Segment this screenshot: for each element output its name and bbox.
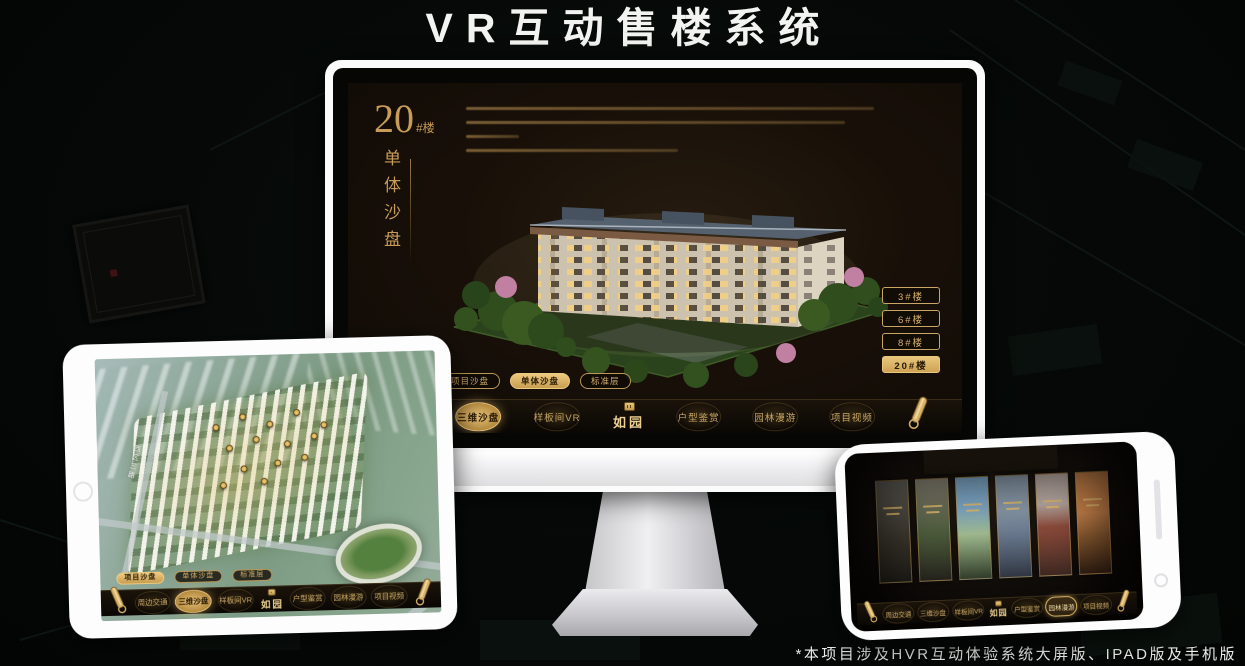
building-badge[interactable] xyxy=(311,432,318,439)
page: VR互动售楼系统 20#楼 单体沙盘 xyxy=(0,0,1245,666)
scroll-icon[interactable] xyxy=(1115,594,1133,613)
brand-logo-text: 如园 xyxy=(261,596,284,611)
seal-icon xyxy=(268,588,276,595)
scroll-icon[interactable] xyxy=(108,592,130,615)
floor-button-8[interactable]: 8#楼 xyxy=(882,333,940,350)
tab-unit-sandbox[interactable]: 单体沙盘 xyxy=(510,373,570,389)
tab-standard-floor[interactable]: 标准层 xyxy=(232,568,272,581)
brand-logo: 如园 xyxy=(613,402,645,431)
unit-subtitle: 单体沙盘 xyxy=(378,149,403,271)
phone-device: 周边交通 三维沙盘 样板间VR 如园 户型鉴赏 园林漫游 项目视频 xyxy=(834,431,1182,642)
monitor-stand xyxy=(585,490,725,592)
nav-item-garden-tour[interactable]: 园林漫游 xyxy=(331,588,365,606)
floor-button-6[interactable]: 6#楼 xyxy=(882,310,940,327)
nav-item-showroom-vr[interactable]: 样板间VR xyxy=(952,602,985,619)
scroll-icon[interactable] xyxy=(413,584,435,607)
text-line xyxy=(466,121,845,124)
building-badge[interactable] xyxy=(240,465,247,472)
phone-app-screen: 周边交通 三维沙盘 样板间VR 如园 户型鉴赏 园林漫游 项目视频 xyxy=(844,441,1143,632)
nav-item-floorplans[interactable]: 户型鉴赏 xyxy=(290,589,324,607)
plaque-border xyxy=(83,215,196,313)
tablet-app-screen: 西区三路 项目沙盘 单体沙盘 标准层 xyxy=(95,350,442,621)
nav-item-3d-sandbox[interactable]: 三维沙盘 xyxy=(455,407,501,427)
tab-standard-floor[interactable]: 标准层 xyxy=(580,373,631,389)
building-badge[interactable] xyxy=(212,424,219,431)
floor-button-group: 3#楼 6#楼 8#楼 20#楼 xyxy=(882,287,940,373)
seal-icon xyxy=(624,402,635,411)
nav-item-floorplans[interactable]: 户型鉴赏 xyxy=(1012,599,1043,616)
nav-item-showroom-vr[interactable]: 样板间VR xyxy=(532,407,583,427)
home-button[interactable] xyxy=(1154,573,1169,588)
red-seal-icon xyxy=(110,269,118,277)
brand-logo: 如园 xyxy=(261,588,285,611)
brand-logo-text: 如园 xyxy=(613,412,645,431)
unit-number-suffix: #楼 xyxy=(416,121,435,135)
nav-item-floorplans[interactable]: 户型鉴赏 xyxy=(676,407,722,427)
nav-item-3d-sandbox[interactable]: 三维沙盘 xyxy=(918,603,949,620)
floor-button-20[interactable]: 20#楼 xyxy=(882,356,940,373)
seal-icon xyxy=(995,600,1002,606)
tab-project-sandbox[interactable]: 项目沙盘 xyxy=(116,571,164,585)
building-badge[interactable] xyxy=(274,459,281,466)
scroll-icon[interactable] xyxy=(861,605,879,624)
nav-item-project-video[interactable]: 项目视频 xyxy=(1081,596,1112,613)
unit-title-block: 20#楼 单体沙盘 xyxy=(374,99,435,271)
floor-button-3[interactable]: 3#楼 xyxy=(882,287,940,304)
nav-item-garden-tour[interactable]: 园林漫游 xyxy=(752,407,798,427)
nav-item-project-video[interactable]: 项目视频 xyxy=(829,407,875,427)
tablet-device: 西区三路 项目沙盘 单体沙盘 标准层 xyxy=(62,335,458,639)
nav-item-garden-tour[interactable]: 园林漫游 xyxy=(1046,598,1077,615)
home-button[interactable] xyxy=(73,481,94,502)
unit-number: 20 xyxy=(374,96,414,141)
gold-divider-line xyxy=(410,159,411,263)
nav-item-traffic[interactable]: 周边交通 xyxy=(135,593,169,611)
monitor-stand-base xyxy=(552,589,758,636)
text-line xyxy=(466,107,874,110)
building-badge[interactable] xyxy=(266,420,273,427)
building-render xyxy=(446,135,892,393)
brand-logo: 如园 xyxy=(989,600,1008,619)
building-badge[interactable] xyxy=(301,453,308,460)
page-title: VR互动售楼系统 xyxy=(0,0,1245,56)
building-badge[interactable] xyxy=(239,413,246,420)
background-plaque xyxy=(72,205,206,324)
nav-item-project-video[interactable]: 项目视频 xyxy=(372,587,406,605)
nav-item-showroom-vr[interactable]: 样板间VR xyxy=(217,591,254,609)
scroll-icon[interactable] xyxy=(905,404,931,430)
tab-unit-sandbox[interactable]: 单体沙盘 xyxy=(174,570,222,584)
brand-logo-text: 如园 xyxy=(989,607,1007,619)
speaker-slot-icon xyxy=(1154,479,1163,539)
nav-item-traffic[interactable]: 周边交通 xyxy=(883,605,914,622)
mode-tab-group: 项目沙盘 单体沙盘 标准层 xyxy=(440,373,631,389)
footnote: *本项目涉及HVR互动体验系统大屏版、IPAD版及手机版 xyxy=(796,643,1237,664)
nav-item-3d-sandbox[interactable]: 三维沙盘 xyxy=(176,592,210,610)
